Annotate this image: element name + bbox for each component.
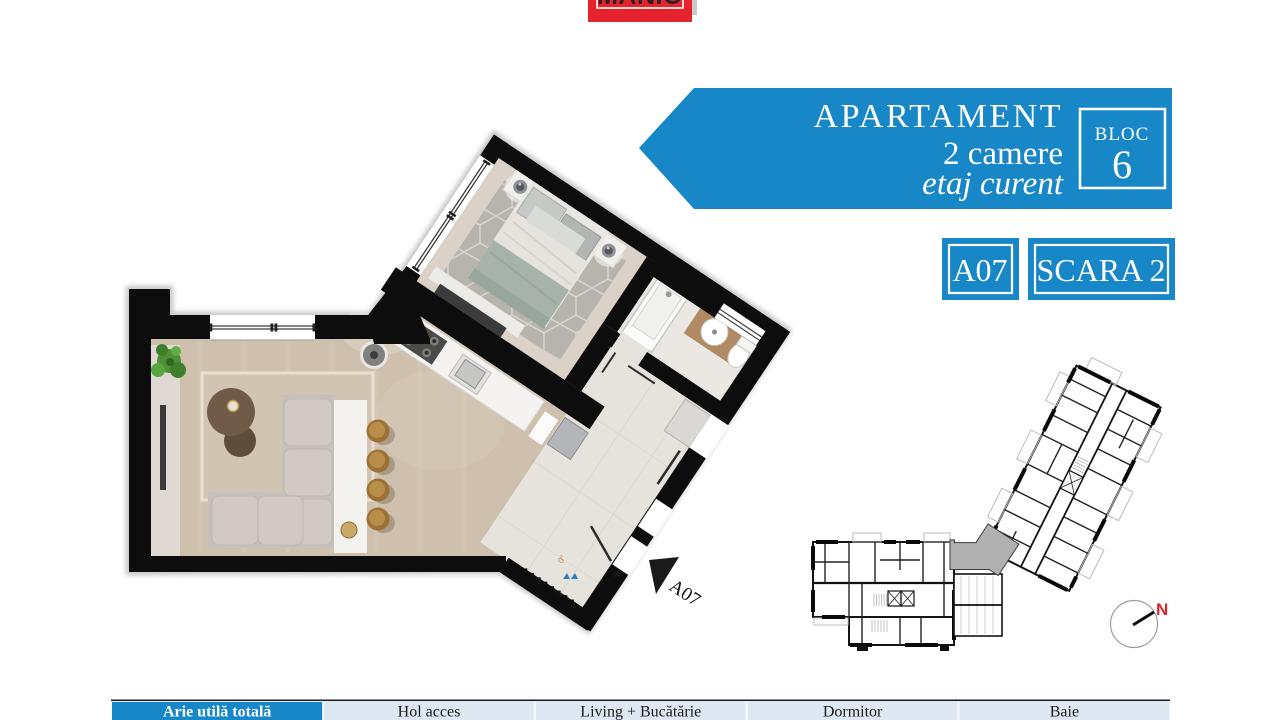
svg-text:MANIO: MANIO (597, 0, 683, 10)
svg-text:Hol acces: Hol acces (398, 704, 461, 720)
svg-text:Arie utilă totală: Arie utilă totală (163, 704, 271, 720)
svg-text:Baie: Baie (1050, 704, 1079, 720)
svg-text:A07: A07 (952, 252, 1007, 288)
svg-text:Dormitor: Dormitor (823, 704, 883, 720)
svg-text:SCARA 2: SCARA 2 (1037, 252, 1166, 288)
svg-text:N: N (1156, 600, 1168, 619)
svg-text:APARTAMENT: APARTAMENT (814, 98, 1063, 135)
svg-text:6: 6 (1112, 142, 1132, 187)
svg-text:etaj curent: etaj curent (922, 166, 1064, 202)
svg-text:Living + Bucătărie: Living + Bucătărie (580, 704, 701, 720)
